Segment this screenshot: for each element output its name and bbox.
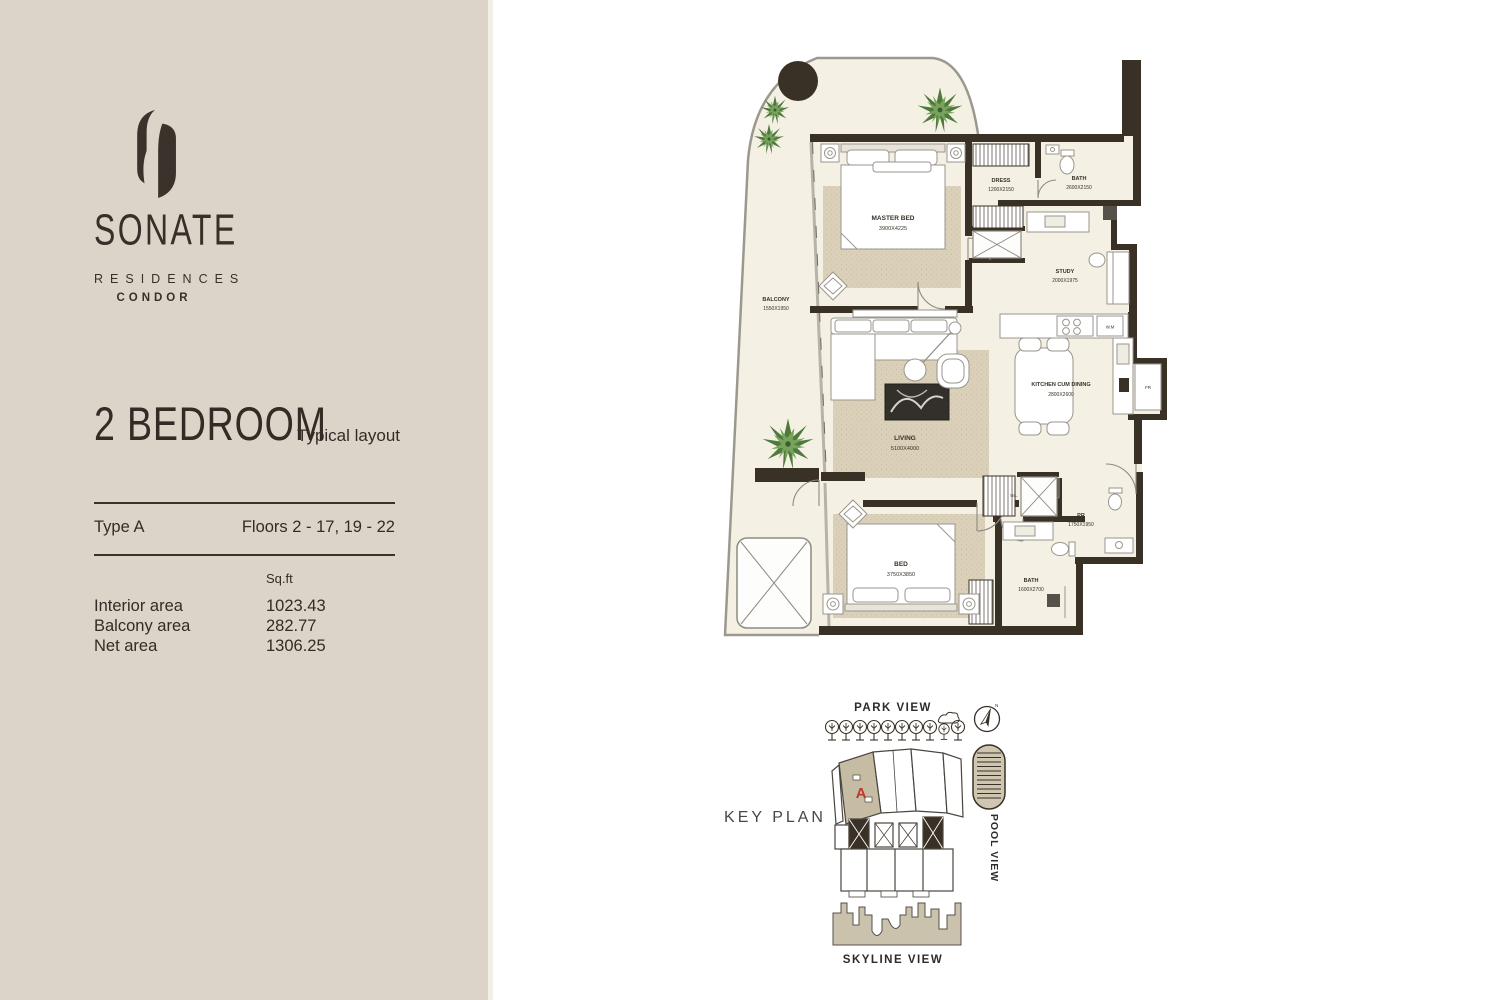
study-label: STUDY — [1056, 269, 1075, 275]
master-bed-dims: 3900X4225 — [879, 226, 907, 232]
area-unit-header: Sq.ft — [266, 571, 293, 586]
area-row-value: 1306.25 — [266, 637, 326, 656]
brand-division: RESIDENCES — [94, 272, 245, 286]
area-row-label: Net area — [94, 637, 157, 656]
pr-label: PR — [1077, 513, 1085, 519]
kitchen-dims: 2800X2600 — [1048, 392, 1074, 398]
area-row-value: 282.77 — [266, 617, 316, 636]
area-row-label: Balcony area — [94, 617, 190, 636]
skyline-view-label: SKYLINE VIEW — [843, 954, 943, 966]
key-plan-label: KEY PLAN — [724, 809, 826, 826]
brand-collection: CONDOR — [94, 292, 214, 304]
structural-column — [778, 61, 818, 101]
sidebar: SONATE RESIDENCES CONDOR 2 BEDROOM Typic… — [0, 0, 493, 1000]
area-row-label: Interior area — [94, 597, 183, 616]
park-trees-row — [826, 712, 965, 740]
page: SONATE RESIDENCES CONDOR 2 BEDROOM Typic… — [0, 0, 1500, 1000]
dress-label: DRESS — [992, 178, 1011, 184]
balcony-label: BALCONY — [762, 297, 790, 303]
study-dims: 2000X1975 — [1052, 278, 1078, 284]
pool-icon — [973, 745, 1005, 809]
tel-label: TEL. — [1010, 493, 1018, 498]
living-label: LIVING — [894, 435, 916, 442]
divider-top — [94, 502, 395, 504]
pr-dims: 1750X1950 — [1068, 522, 1094, 528]
skyline-icon — [833, 903, 961, 945]
wm-label: W.M — [1106, 325, 1115, 330]
compass-icon: N — [975, 703, 1000, 732]
bath1-dims: 2600X2150 — [1066, 185, 1092, 191]
area-row-value: 1023.43 — [266, 597, 326, 616]
page-title: 2 BEDROOM — [94, 396, 327, 451]
type-floors-row: Type A Floors 2 - 17, 19 - 22 — [94, 518, 395, 537]
kitchen-label: KITCHEN CUM DINING — [1031, 382, 1090, 388]
master-bed-label: MASTER BED — [872, 215, 915, 222]
divider-bottom — [94, 554, 395, 556]
dress-dims: 1200X2150 — [988, 187, 1014, 193]
unit-floors: Floors 2 - 17, 19 - 22 — [242, 518, 395, 537]
bath1-label: BATH — [1072, 176, 1087, 182]
key-plan: PARK VIEW N POOL VIEW — [715, 693, 1015, 983]
balcony-dims: 1550X1950 — [763, 306, 789, 312]
brand-logo-icon — [128, 110, 182, 198]
bath2-label: BATH — [1024, 578, 1039, 584]
pool-view-label: POOL VIEW — [988, 814, 1000, 882]
building-footprint — [832, 749, 963, 897]
bed2-label: BED — [894, 561, 908, 568]
bed2-dims: 3750X3850 — [887, 572, 915, 578]
park-view-label: PARK VIEW — [854, 702, 932, 714]
living-dims: 5100X4000 — [891, 446, 919, 452]
cloud-icon — [938, 712, 959, 723]
brand-name: SONATE — [94, 206, 238, 256]
fr-label: FR — [1145, 385, 1152, 390]
unit-type: Type A — [94, 518, 144, 537]
compass-north-label: N — [995, 703, 998, 708]
page-subtitle: Typical layout — [297, 426, 400, 446]
unit-a-marker: A — [856, 785, 867, 802]
bath2-dims: 1600X2700 — [1018, 587, 1044, 593]
floor-plan: MASTER BED 3900X4225 DRESS 1200X2150 BAT… — [715, 48, 1177, 648]
